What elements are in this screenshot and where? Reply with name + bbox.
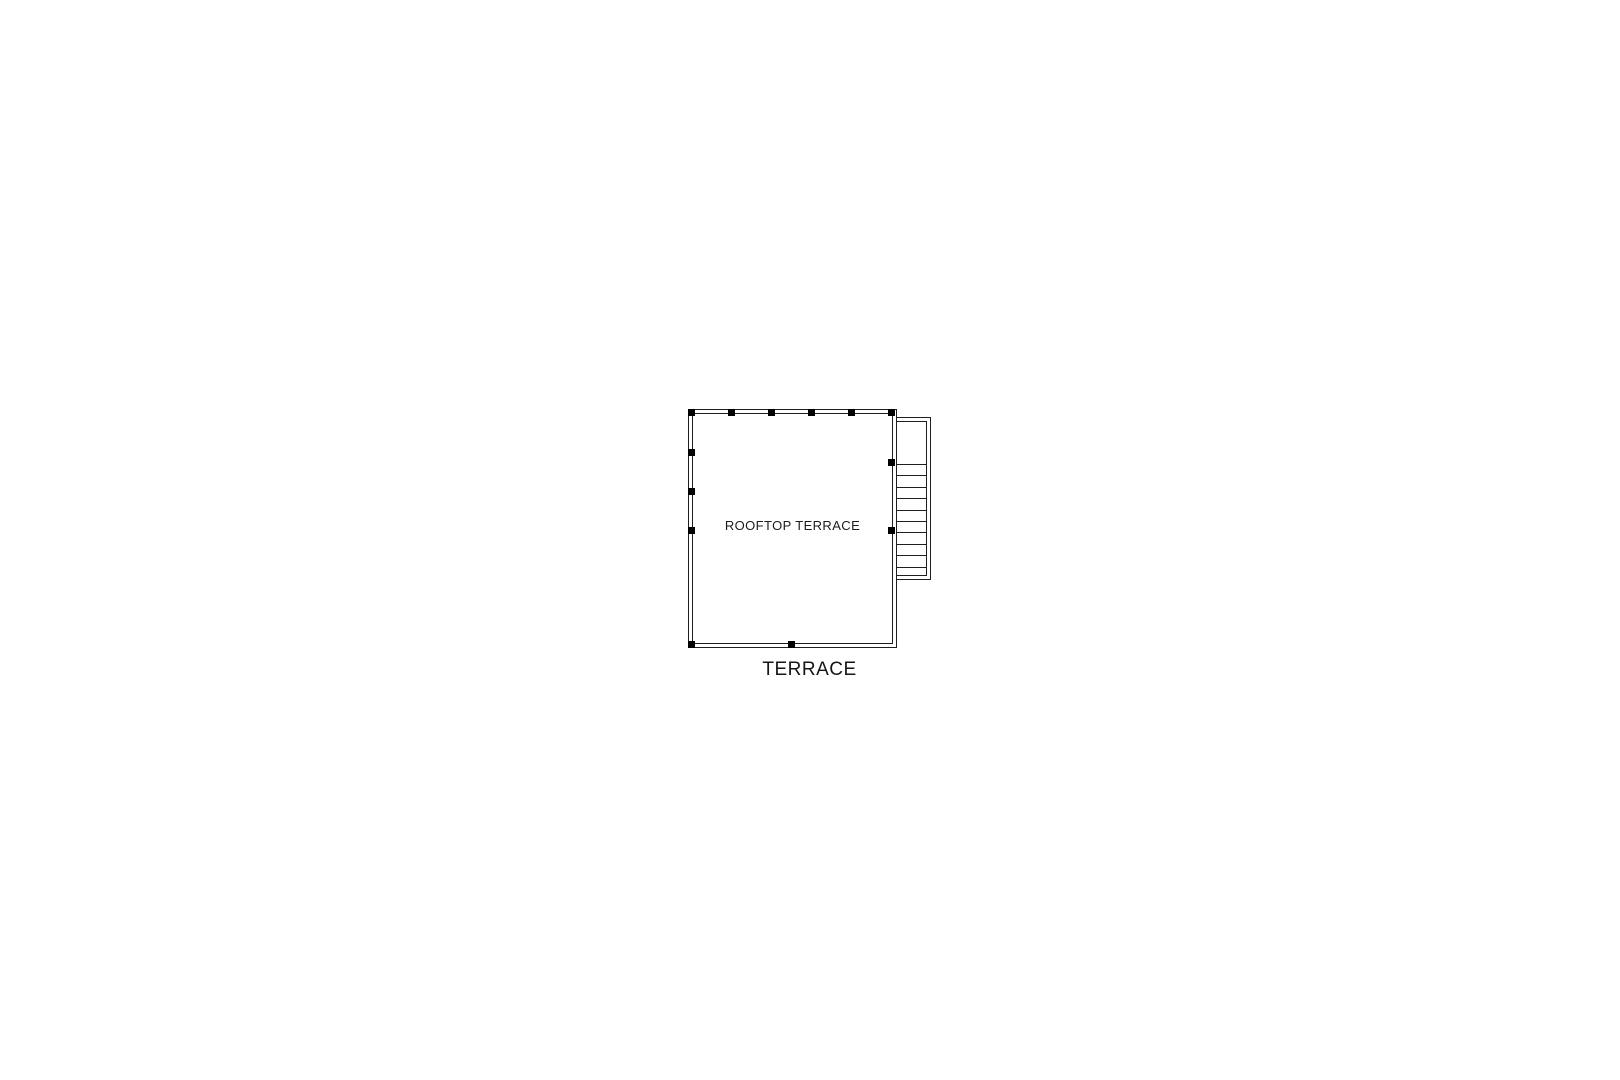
stair-tread bbox=[897, 475, 926, 476]
railing-post bbox=[848, 409, 855, 416]
railing-post bbox=[688, 527, 695, 534]
stair-tread bbox=[897, 567, 926, 568]
floor-plan-canvas: ROOFTOP TERRACE TERRACE bbox=[0, 0, 1620, 1080]
staircase bbox=[897, 417, 931, 580]
stair-tread bbox=[897, 510, 926, 511]
stair-treads bbox=[897, 418, 926, 575]
stair-tread bbox=[897, 487, 926, 488]
railing-post bbox=[688, 641, 695, 648]
railing-post bbox=[888, 459, 895, 466]
railing-post bbox=[728, 409, 735, 416]
railing-post bbox=[768, 409, 775, 416]
railing-post bbox=[688, 449, 695, 456]
stair-tread bbox=[897, 521, 926, 522]
stair-tread bbox=[897, 532, 926, 533]
terrace-outline: ROOFTOP TERRACE bbox=[688, 409, 897, 648]
railing-post bbox=[888, 409, 895, 416]
stair-tread bbox=[897, 544, 926, 545]
rooftop-terrace-plan: ROOFTOP TERRACE bbox=[688, 409, 931, 648]
railing-post bbox=[888, 527, 895, 534]
stair-tread bbox=[897, 555, 926, 556]
stair-tread bbox=[897, 464, 926, 465]
railing-post bbox=[808, 409, 815, 416]
stair-tread bbox=[897, 498, 926, 499]
railing-post bbox=[688, 488, 695, 495]
floor-title: TERRACE bbox=[688, 659, 931, 681]
railing-post bbox=[788, 641, 795, 648]
railing-post bbox=[688, 409, 695, 416]
room-label: ROOFTOP TERRACE bbox=[689, 518, 896, 533]
